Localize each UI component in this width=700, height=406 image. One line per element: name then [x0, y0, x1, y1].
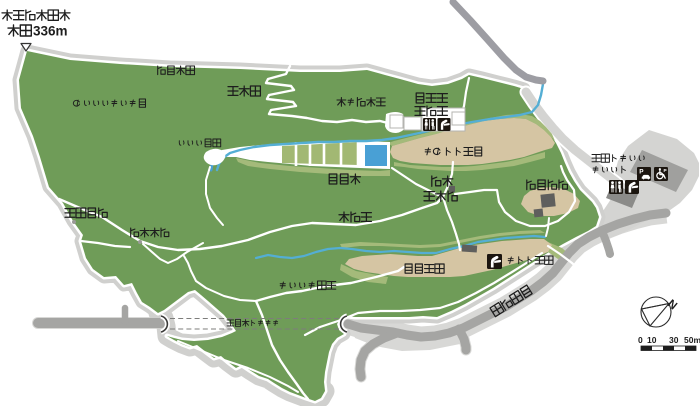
svg-text:10: 10 — [647, 335, 657, 345]
svg-text:336m: 336m — [33, 24, 68, 39]
svg-text:50m: 50m — [684, 335, 700, 345]
svg-text:0: 0 — [638, 335, 643, 345]
svg-text:P: P — [639, 168, 644, 175]
svg-text:30: 30 — [669, 335, 679, 345]
svg-text:P: P — [664, 168, 667, 174]
